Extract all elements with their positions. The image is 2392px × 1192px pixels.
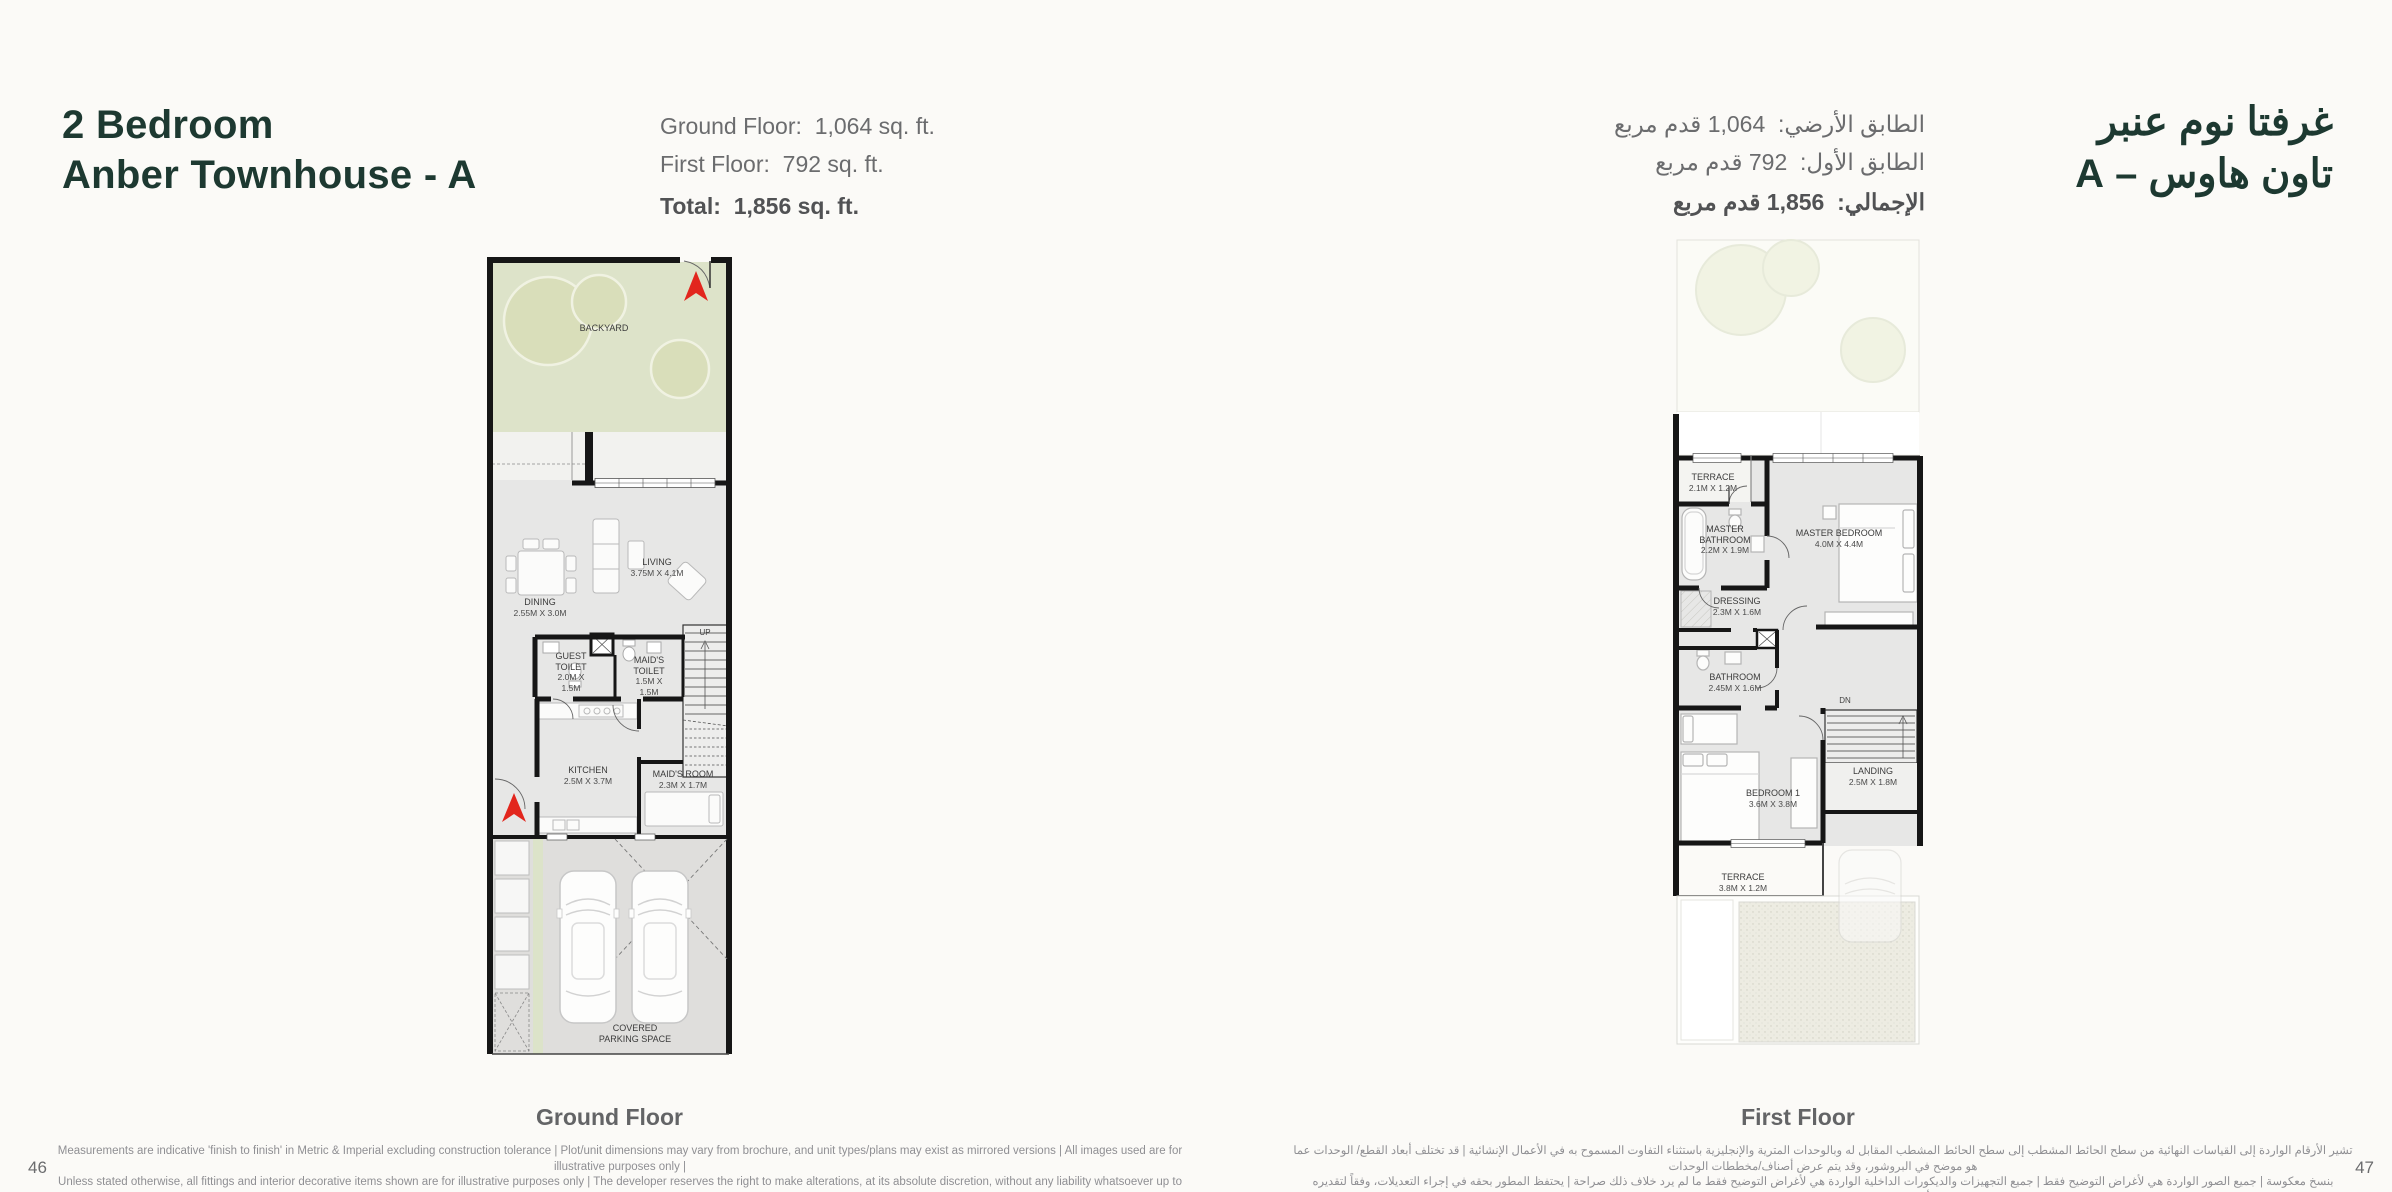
stat-value: 792 sq. ft. <box>783 151 884 177</box>
stat-value: 1,064 sq. ft. <box>815 113 935 139</box>
garden-strip <box>533 837 543 1054</box>
room-label-dressing: DRESSING 2.3M X 1.6M <box>1713 596 1761 617</box>
room-name: BATHROOM <box>1709 672 1762 683</box>
tree-icon <box>651 340 709 398</box>
room-name: DINING <box>514 597 567 608</box>
stairs-up <box>683 625 728 777</box>
room-dims: 2.1M X 1.2M <box>1689 483 1737 494</box>
stat-label: الإجمالي: <box>1837 189 1925 215</box>
disclaimer-ar-line2: بنسخ معكوسة | جميع الصور الواردة هي لأغر… <box>1292 1175 2354 1192</box>
tree-icon <box>572 275 626 329</box>
room-dims: 2.0M X 1.5M <box>548 672 594 693</box>
stat-value: 1,856 sq. ft. <box>734 193 859 219</box>
first-floor-plan: TERRACE 2.1M X 1.2M MASTER BATHROOM 2.2M… <box>1673 238 1923 1048</box>
room-name: COVERED PARKING SPACE <box>598 1023 672 1044</box>
room-name: TERRACE <box>1689 472 1737 483</box>
room-name: DRESSING <box>1713 596 1761 607</box>
car-icon <box>629 871 691 1023</box>
room-name: BEDROOM 1 <box>1738 788 1808 799</box>
room-dims: 2.3M X 1.6M <box>1713 607 1761 618</box>
ground-floor-drawing <box>487 257 732 1056</box>
room-label-maids-toilet: MAID'S TOILET 1.5M X 1.5M <box>626 655 672 697</box>
stat-label: Ground Floor: <box>660 113 802 139</box>
maids-room-furniture <box>645 792 723 826</box>
room-name: MAID'S TOILET <box>626 655 672 676</box>
car-icon <box>1839 850 1901 942</box>
stairs-direction: UP <box>699 628 710 639</box>
room-name: MAID'S ROOM <box>651 769 715 780</box>
disclaimer-en-line2: Unless stated otherwise, all fittings an… <box>55 1175 1185 1192</box>
parking-label: COVERED PARKING SPACE <box>598 1023 672 1044</box>
faded-backyard <box>1677 240 1919 412</box>
pillow <box>1903 554 1914 592</box>
room-dims: 2.3M X 1.7M <box>651 780 715 791</box>
room-label-terrace-bottom: TERRACE 3.8M X 1.2M <box>1719 872 1767 893</box>
room-dims: 2.55M X 3.0M <box>514 608 567 619</box>
room-dims: 3.75M X 4.1M <box>631 568 684 579</box>
stat-first-floor-en: First Floor: 792 sq. ft. <box>660 150 935 178</box>
page-title-ar-line2: تاون هاوس – A <box>2075 148 2333 200</box>
room-name: MASTER BEDROOM <box>1779 528 1899 539</box>
room-name: MASTER BATHROOM <box>1697 524 1753 545</box>
room-label-landing: LANDING 2.5M X 1.8M <box>1845 766 1901 787</box>
room-name: TERRACE <box>1719 872 1767 883</box>
room-name: KITCHEN <box>564 765 612 776</box>
rear-band <box>1677 412 1919 454</box>
area-stats-ar: الطابق الأرضي: 1,064 قدم مربع الطابق الأ… <box>1614 110 1925 226</box>
page-title-en-line1: 2 Bedroom <box>62 100 477 150</box>
dining-table <box>518 551 564 595</box>
side-table <box>1823 506 1836 519</box>
room-name: BACKYARD <box>580 323 629 334</box>
stat-label: الطابق الأرضي: <box>1778 111 1925 137</box>
stat-label: Total: <box>660 193 721 219</box>
pillow <box>709 795 720 823</box>
page-title-ar: غرفتا نوم عنبر تاون هاوس – A <box>2075 96 2333 200</box>
car-icon <box>557 871 619 1023</box>
room-dims: 2.5M X 3.7M <box>564 776 612 787</box>
room-label-backyard: BACKYARD <box>580 323 629 334</box>
stat-value: 1,064 قدم مربع <box>1614 111 1765 137</box>
stat-total-ar: الإجمالي: 1,856 قدم مربع <box>1614 188 1925 216</box>
room-label-master-bedroom: MASTER BEDROOM 4.0M X 4.4M <box>1779 528 1899 549</box>
room-label-living: LIVING 3.75M X 4.1M <box>631 557 684 578</box>
stat-value: 792 قدم مربع <box>1655 149 1787 175</box>
stat-ground-floor-ar: الطابق الأرضي: 1,064 قدم مربع <box>1614 110 1925 138</box>
room-dims: 1.5M X 1.5M <box>626 676 672 697</box>
pillow <box>1683 754 1703 766</box>
patio-strip <box>492 432 727 480</box>
stat-value: 1,856 قدم مربع <box>1673 189 1824 215</box>
first-floor-caption: First Floor <box>1673 1104 1923 1131</box>
room-dims: 2.45M X 1.6M <box>1709 683 1762 694</box>
stairs-direction: DN <box>1839 696 1851 707</box>
room-label-bedroom-1: BEDROOM 1 3.6M X 3.8M <box>1738 788 1808 809</box>
stairs-up-label: UP <box>699 628 710 639</box>
room-dims: 4.0M X 4.4M <box>1779 539 1899 550</box>
stairs-down-label: DN <box>1839 696 1851 707</box>
room-label-master-bathroom: MASTER BATHROOM 2.2M X 1.9M <box>1697 524 1753 556</box>
stat-total-en: Total: 1,856 sq. ft. <box>660 192 935 220</box>
dresser <box>1825 612 1913 626</box>
first-floor-drawing <box>1673 238 1923 1048</box>
room-label-terrace-top: TERRACE 2.1M X 1.2M <box>1689 472 1737 493</box>
rear-terrace-block <box>1677 850 1919 1044</box>
room-label-guest-toilet: GUEST TOILET 2.0M X 1.5M <box>548 651 594 693</box>
stairs-down <box>1825 710 1917 810</box>
tree-icon <box>1763 240 1819 296</box>
tree-icon <box>1841 318 1905 382</box>
pillow <box>1707 754 1727 766</box>
sofa <box>593 519 619 593</box>
pillow <box>1683 716 1693 742</box>
room-dims: 3.6M X 3.8M <box>1738 799 1808 810</box>
shaft <box>1757 630 1777 648</box>
room-name: LANDING <box>1845 766 1901 777</box>
disclaimer-ar: تشير الأرقام الواردة إلى القياسات النهائ… <box>1292 1144 2354 1192</box>
stat-label: First Floor: <box>660 151 770 177</box>
page-title-ar-line1: غرفتا نوم عنبر <box>2075 96 2333 148</box>
dressing-wardrobe <box>1681 591 1711 627</box>
page-title-en-line2: Anber Townhouse - A <box>62 150 477 200</box>
room-label-bathroom: BATHROOM 2.45M X 1.6M <box>1709 672 1762 693</box>
area-stats-en: Ground Floor: 1,064 sq. ft. First Floor:… <box>660 112 935 230</box>
room-dims: 2.2M X 1.9M <box>1697 545 1753 556</box>
stat-first-floor-ar: الطابق الأول: 792 قدم مربع <box>1614 148 1925 176</box>
room-label-dining: DINING 2.55M X 3.0M <box>514 597 567 618</box>
room-dims: 2.5M X 1.8M <box>1845 777 1901 788</box>
brochure-page: 2 Bedroom Anber Townhouse - A Ground Flo… <box>0 0 2392 1192</box>
disclaimer-en: Measurements are indicative 'finish to f… <box>55 1144 1185 1192</box>
disclaimer-en-line1: Measurements are indicative 'finish to f… <box>55 1144 1185 1175</box>
room-dims: 3.8M X 1.2M <box>1719 883 1767 894</box>
stat-ground-floor-en: Ground Floor: 1,064 sq. ft. <box>660 112 935 140</box>
pillow <box>1903 510 1914 548</box>
room-name: GUEST TOILET <box>548 651 594 672</box>
room-label-kitchen: KITCHEN 2.5M X 3.7M <box>564 765 612 786</box>
stat-label: الطابق الأول: <box>1800 149 1925 175</box>
room-label-maids-room: MAID'S ROOM 2.3M X 1.7M <box>651 769 715 790</box>
ground-floor-caption: Ground Floor <box>487 1104 732 1131</box>
page-title-en: 2 Bedroom Anber Townhouse - A <box>62 100 477 200</box>
room-name: LIVING <box>631 557 684 568</box>
ground-floor-plan: BACKYARD DINING 2.55M X 3.0M LIVING 3.75… <box>487 257 732 1056</box>
page-number-right: 47 <box>2355 1158 2374 1178</box>
disclaimer-ar-line1: تشير الأرقام الواردة إلى القياسات النهائ… <box>1292 1144 2354 1175</box>
page-number-left: 46 <box>28 1158 47 1178</box>
